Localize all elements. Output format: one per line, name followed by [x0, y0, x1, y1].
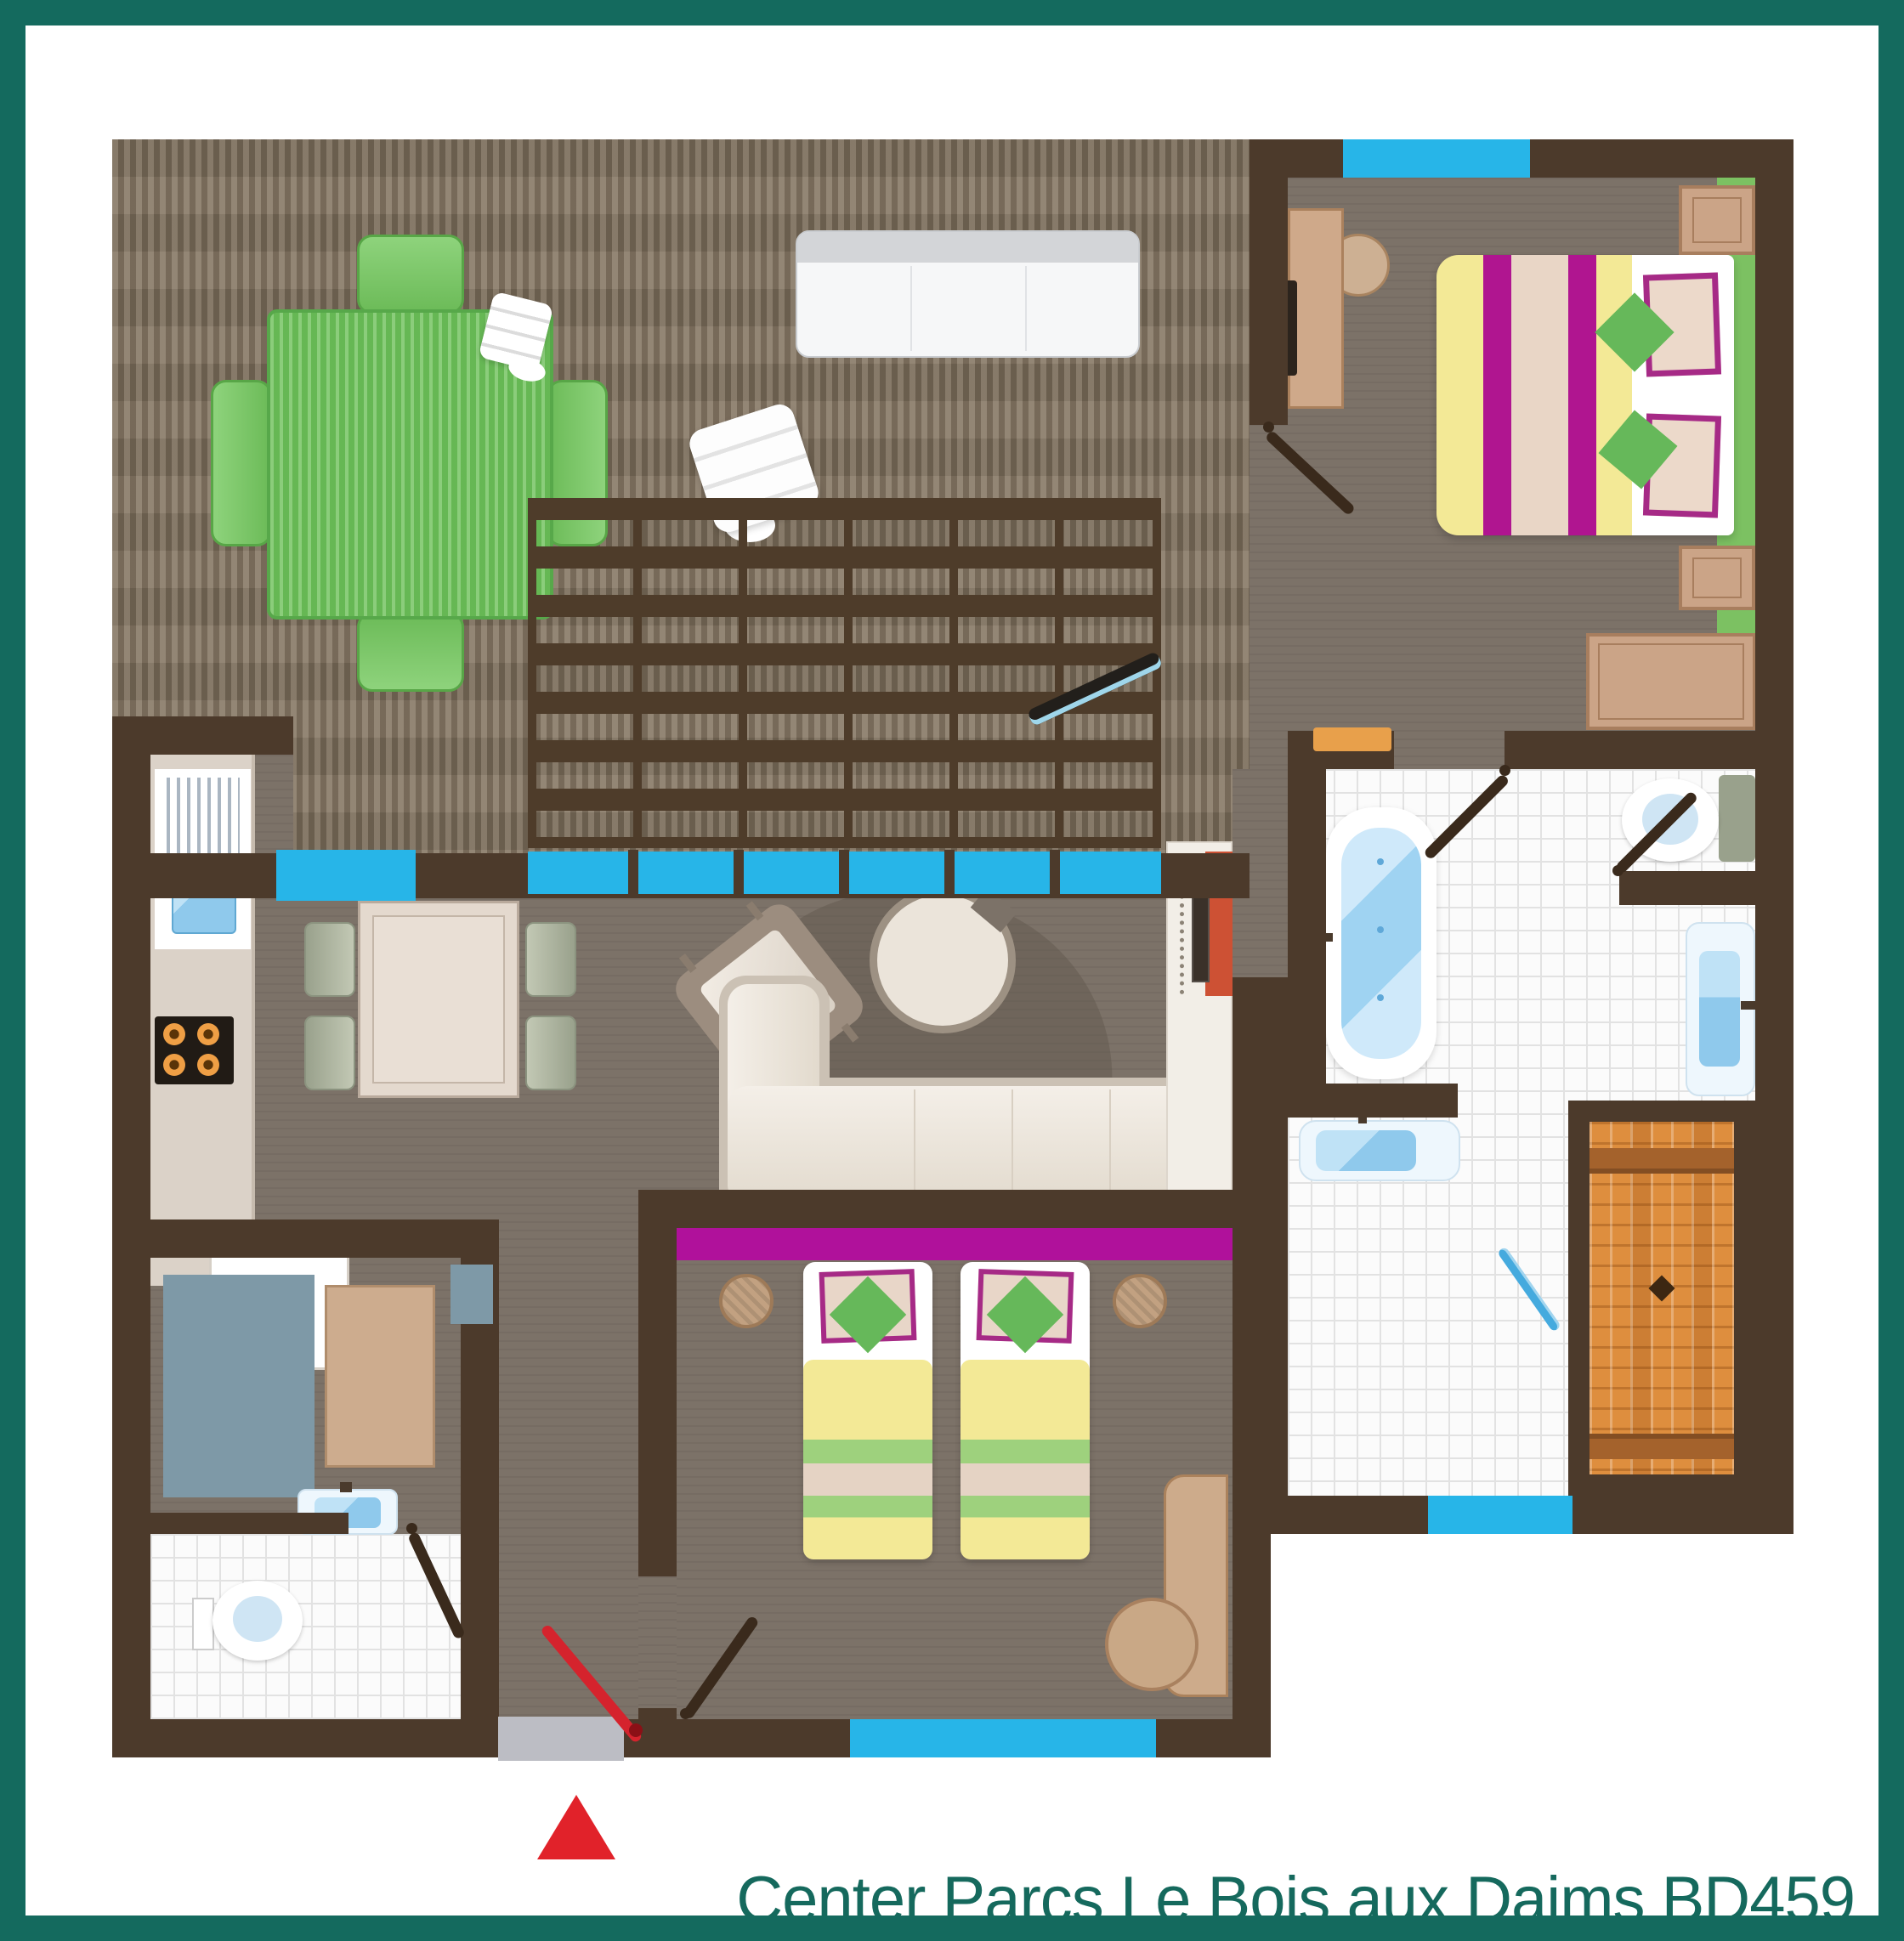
slider-post	[839, 850, 849, 896]
kids-headboard-band	[677, 1228, 1232, 1260]
wall-sauna-top	[112, 1219, 499, 1258]
nightstand-inset	[1692, 557, 1742, 598]
entrance-door-knob	[629, 1723, 643, 1737]
wall-bath-top-b	[1504, 731, 1793, 769]
dresser-inset	[1598, 643, 1744, 720]
basin	[1699, 951, 1740, 1067]
wall-tub-bottom	[1288, 1084, 1458, 1118]
wall-tub-left	[1288, 769, 1326, 1084]
shower	[1568, 1101, 1755, 1496]
towel-icon	[1313, 727, 1391, 751]
slider-post	[1050, 850, 1060, 896]
nightstand-inset	[1692, 197, 1742, 243]
door-hinge	[1263, 422, 1274, 433]
sofa-seam	[1109, 1089, 1111, 1202]
terrace-slat-screen	[528, 498, 1161, 848]
small-basin-faucet-icon	[340, 1482, 352, 1492]
kids-duvet	[803, 1360, 932, 1559]
kids-bed	[803, 1262, 932, 1559]
bathtub	[1326, 807, 1436, 1079]
kids-door-opening	[638, 1576, 677, 1708]
wall-kids-top	[638, 1190, 1271, 1228]
slider-post	[734, 850, 744, 896]
picnic-chair-bottom	[357, 612, 464, 692]
door-hinge	[1612, 865, 1623, 876]
dining-chair	[525, 1016, 576, 1090]
burner-icon	[197, 1023, 219, 1045]
window-terrace	[276, 850, 416, 901]
wall-kitchen-nook	[112, 716, 293, 755]
stool	[719, 1274, 773, 1328]
picnic-chair-left	[211, 380, 272, 546]
duvet	[1436, 255, 1632, 535]
picnic-chair-top	[357, 235, 464, 314]
garden-bench	[796, 230, 1140, 358]
window-bedroom	[1343, 139, 1530, 178]
hall-shelf	[450, 1265, 493, 1324]
dish-rack-icon	[167, 778, 240, 854]
burner-icon	[197, 1054, 219, 1076]
bath-jet-icon	[1377, 926, 1384, 933]
sofa	[719, 976, 1214, 1219]
kids-desk-chair	[1105, 1598, 1198, 1691]
dining-table	[358, 901, 519, 1098]
bath-jet-icon	[1377, 994, 1384, 1001]
entrance-mat	[498, 1717, 624, 1761]
nightstand	[1679, 546, 1755, 610]
sauna-mat	[163, 1275, 314, 1497]
burner-icon	[163, 1054, 185, 1076]
toilet-cistern	[192, 1598, 214, 1650]
burner-icon	[163, 1023, 185, 1045]
window-bathroom	[1428, 1496, 1572, 1534]
toilet-cistern	[1719, 775, 1755, 862]
page-title: Center Parcs Le Bois aux Daims BD459	[736, 1863, 1855, 1937]
double-bed	[1436, 255, 1734, 535]
wall-right	[1755, 139, 1793, 1534]
sauna-bench	[325, 1285, 435, 1468]
basin	[1316, 1130, 1416, 1171]
dresser	[1586, 633, 1756, 730]
floor-plan-page: Center Parcs Le Bois aux Daims BD459	[0, 0, 1904, 1941]
dining-table-inset	[372, 915, 505, 1084]
stove	[155, 1016, 234, 1084]
sofa-seat	[728, 1086, 1197, 1205]
wall-kids-right	[1232, 1496, 1271, 1757]
garden-bench-divider	[1025, 266, 1027, 351]
door-hinge	[406, 1523, 417, 1534]
shower-bench	[1589, 1148, 1734, 1174]
garden-bench-divider	[910, 266, 912, 351]
dining-chair	[525, 922, 576, 997]
window-kids	[850, 1719, 1156, 1757]
dining-chair	[304, 922, 355, 997]
door-hinge	[680, 1708, 691, 1719]
wall-sauna-toilet	[150, 1513, 348, 1534]
stool	[1113, 1274, 1167, 1328]
sofa-seam	[914, 1089, 915, 1202]
bath-jet-icon	[1377, 858, 1384, 865]
wall-toilet-stub	[1619, 871, 1755, 905]
slider-post	[628, 850, 638, 896]
garden-bench-backrest	[797, 232, 1138, 263]
wall-bedroom-left	[1249, 178, 1288, 425]
entrance-arrow-icon	[537, 1795, 615, 1859]
slider-post	[944, 850, 955, 896]
nightstand	[1679, 185, 1755, 255]
dining-chair	[304, 1016, 355, 1090]
wall-living-bath	[1232, 977, 1288, 1496]
washbasin-double	[1299, 1120, 1460, 1181]
sofa-seam	[1011, 1089, 1013, 1202]
kids-duvet	[960, 1360, 1090, 1559]
door-hinge	[1499, 765, 1510, 776]
kids-bed	[960, 1262, 1090, 1559]
shower-bench	[1589, 1434, 1734, 1459]
small-toilet	[192, 1579, 303, 1662]
toilet-seat	[233, 1596, 282, 1642]
